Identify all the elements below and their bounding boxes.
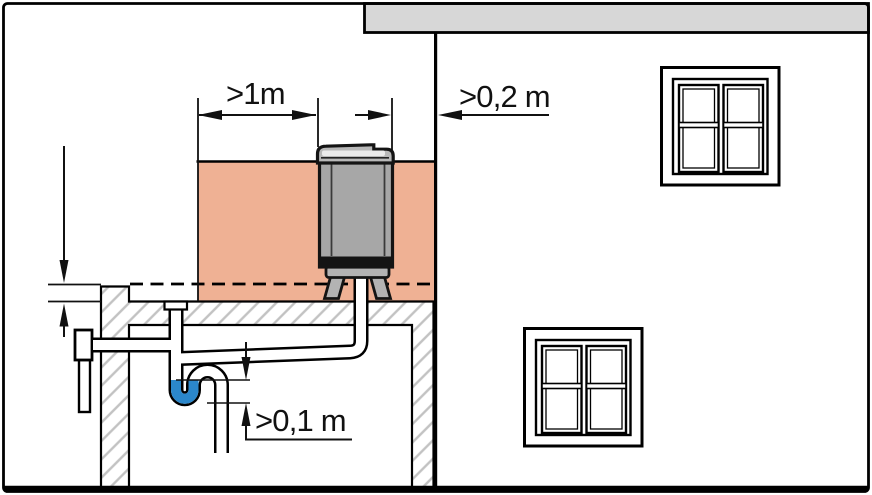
trap-seal-label: >0,1 m — [255, 403, 346, 438]
arrowhead-right — [292, 110, 316, 120]
window-lower-pane-right — [591, 350, 623, 429]
backdrop-wall-fill — [198, 162, 436, 302]
dimension-wall-clearance: >0,2 m — [355, 79, 550, 150]
diagram-canvas: >1m >0,2 m >0,1 m — [0, 0, 872, 495]
arrowhead-up — [242, 403, 251, 426]
window-upper-bar-right — [724, 123, 764, 128]
arrowhead-down — [242, 357, 251, 380]
scupper-box — [75, 330, 92, 360]
roof-slab-and-walls-hatched — [101, 287, 434, 490]
parapet-scupper — [75, 330, 92, 412]
wall-clearance-label: >0,2 m — [459, 79, 550, 114]
window-upper-pane-right — [728, 89, 760, 168]
window-lower — [525, 329, 643, 447]
window-lower-bar-right — [587, 384, 627, 389]
window-lower-bar-left — [542, 384, 582, 389]
arrowhead-up — [60, 304, 69, 327]
arrowhead-down — [60, 260, 69, 283]
roof-eave-strip — [365, 4, 869, 33]
arrowhead-to-unit — [368, 110, 391, 120]
roof-drain-collar — [165, 302, 188, 310]
unit-body — [320, 159, 393, 267]
arrowhead-left — [198, 110, 222, 120]
heat-pump-unit — [318, 145, 395, 299]
window-lower-pane-left — [546, 350, 578, 429]
window-upper-pane-left — [683, 89, 715, 168]
siphon-trap-water — [176, 380, 194, 399]
side-clearance-label: >1m — [226, 76, 285, 111]
installation-diagram: >1m >0,2 m >0,1 m — [0, 0, 872, 495]
building-wall-line — [434, 32, 437, 488]
scupper-outlet-tube — [79, 360, 90, 412]
unit-cap-stripe — [322, 151, 385, 157]
dimension-stand-height — [48, 146, 101, 337]
window-upper-bar-left — [679, 123, 719, 128]
backdrop-wall — [197, 162, 438, 302]
window-upper — [662, 68, 780, 186]
unit-base-band — [318, 257, 394, 267]
